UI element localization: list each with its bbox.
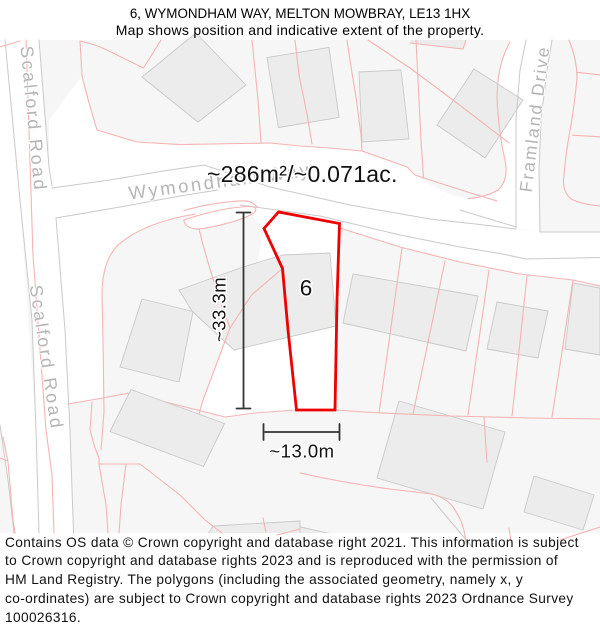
svg-text:~286m²/~0.071ac.: ~286m²/~0.071ac. — [207, 161, 398, 187]
svg-text:~33.3m: ~33.3m — [209, 277, 230, 342]
svg-text:~13.0m: ~13.0m — [269, 441, 334, 462]
svg-text:6: 6 — [300, 276, 313, 301]
